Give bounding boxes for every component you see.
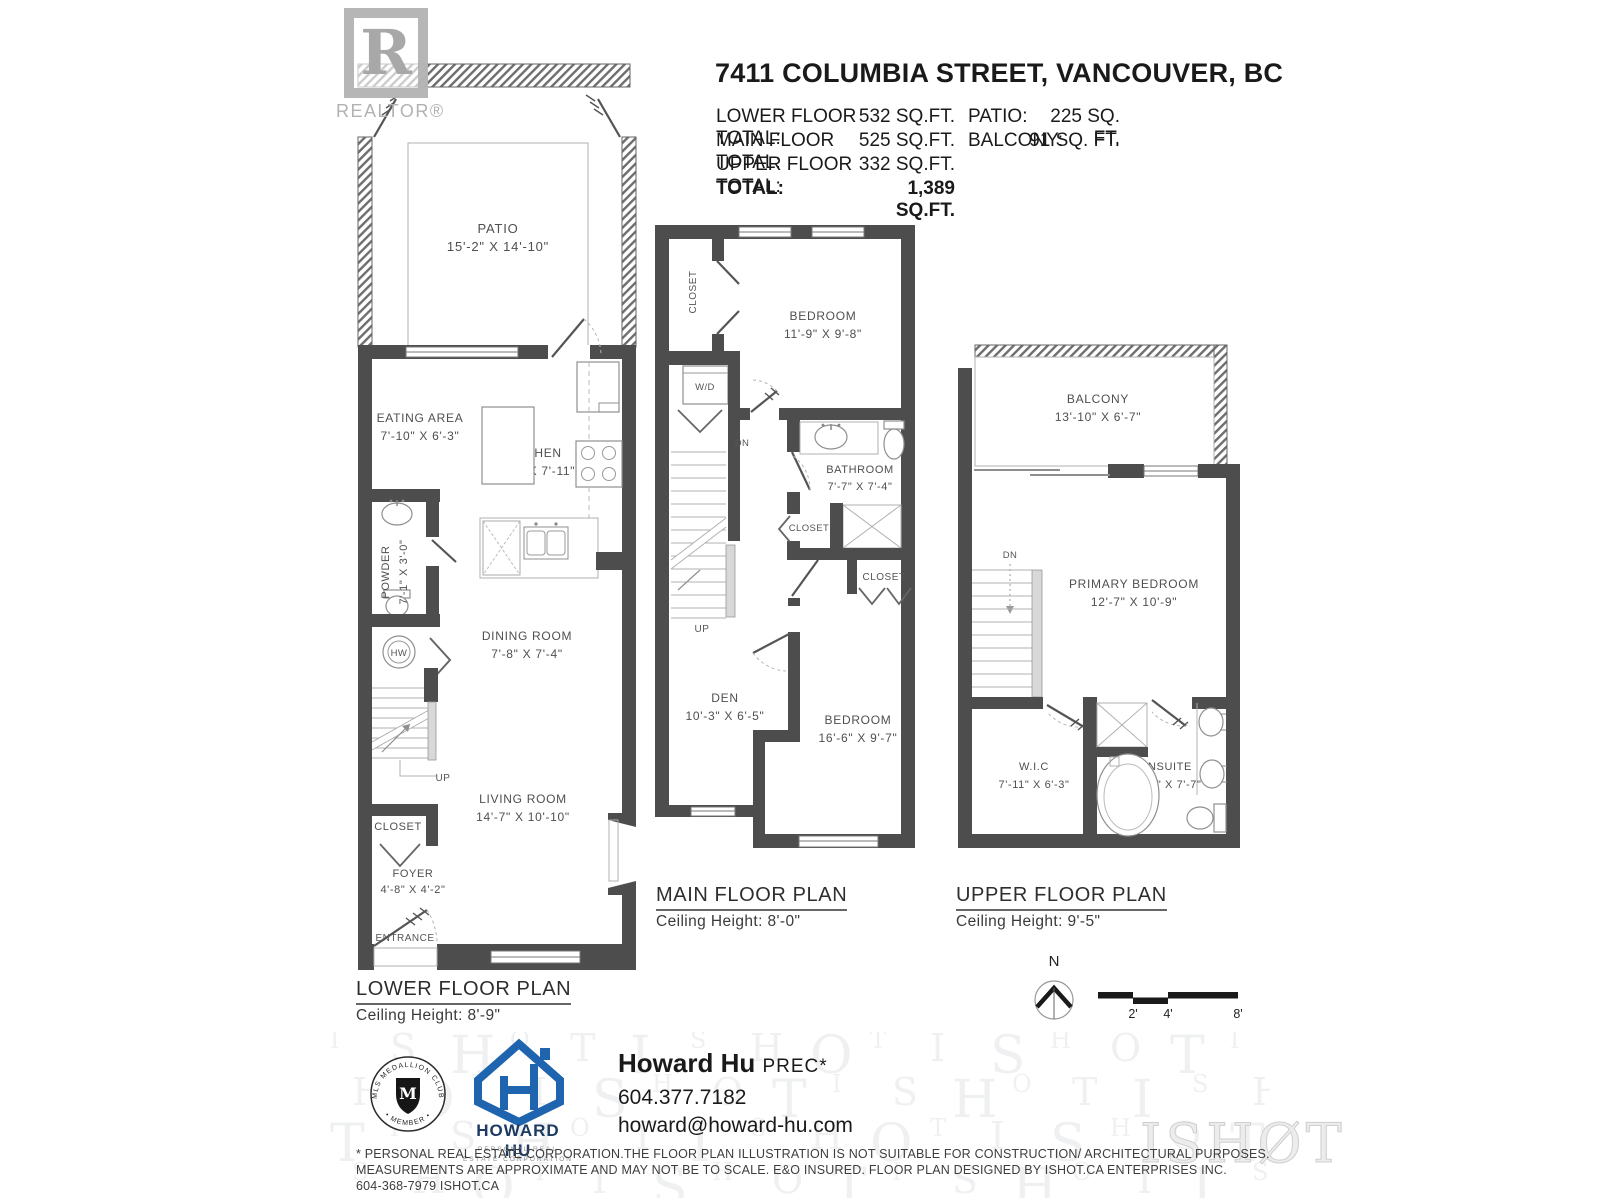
stairs-upper bbox=[972, 570, 1042, 697]
plan-ceiling: Ceiling Height: 8'-0" bbox=[656, 913, 847, 931]
upper-floor-plan: BALCONY 13'-10" X 6'-7" DN PRIMARY BEDRO… bbox=[945, 330, 1250, 855]
hw-label: HW bbox=[391, 648, 408, 659]
room-dims: 16'-6" X 9'-7" bbox=[819, 731, 898, 745]
plan-ceiling: Ceiling Height: 8'-9" bbox=[356, 1007, 571, 1025]
dn-label: DN bbox=[735, 438, 750, 449]
scale-bar: 2' 4' 8' bbox=[1098, 992, 1243, 1021]
lower-plan-caption: LOWER FLOOR PLAN Ceiling Height: 8'-9" bbox=[356, 978, 571, 1025]
scale-tick: 2' bbox=[1128, 1007, 1137, 1021]
room-label: EATING AREA bbox=[377, 411, 464, 425]
ensuite-sink bbox=[1199, 708, 1223, 736]
agent-phone[interactable]: 604.377.7182 bbox=[618, 1086, 746, 1110]
room-label: POWDER bbox=[380, 545, 392, 598]
room-dims: 7'-1" X 3'-0" bbox=[398, 539, 410, 604]
ensuite-sink bbox=[1200, 760, 1224, 788]
realtor-logo-icon: R bbox=[344, 8, 428, 98]
room-label: BALCONY bbox=[1067, 392, 1129, 406]
realtor-letter: R bbox=[360, 16, 412, 89]
main-plan-caption: MAIN FLOOR PLAN Ceiling Height: 8'-0" bbox=[656, 884, 847, 931]
room-dims: 7'-8" X 7'-4" bbox=[491, 647, 563, 661]
disclaimer-line: * PERSONAL REAL ESTATE CORPORATION.THE F… bbox=[356, 1147, 1270, 1161]
plan-title: MAIN FLOOR PLAN bbox=[656, 884, 847, 911]
floor-plan-page: ISHOTISHOTISHOTIHOTISHOTISHOTISHTISHOTIS… bbox=[0, 0, 1600, 1200]
room-dims: 7'-11" X 6'-3" bbox=[999, 779, 1070, 791]
plan-title: UPPER FLOOR PLAN bbox=[956, 884, 1167, 911]
toilet bbox=[884, 421, 904, 429]
fridge bbox=[577, 362, 619, 412]
room-dims: 7'-7" X 7'-4" bbox=[827, 481, 892, 493]
room-label: DEN bbox=[711, 691, 738, 705]
kitchen-island bbox=[482, 407, 534, 484]
room-label: PATIO bbox=[477, 221, 518, 236]
north-label: N bbox=[1049, 953, 1060, 970]
realtor-wordmark: REALTOR® bbox=[336, 101, 445, 122]
dn-label: DN bbox=[1003, 550, 1018, 561]
room-label: BATHROOM bbox=[826, 464, 894, 476]
room-label: CLOSET bbox=[789, 523, 829, 534]
ensuite-toilet bbox=[1214, 804, 1226, 832]
room-label: FOYER bbox=[393, 868, 434, 880]
agent-designation: PREC* bbox=[762, 1056, 827, 1077]
room-dims: 11'-9" X 9'-8" bbox=[784, 327, 862, 341]
scale-tick: 4' bbox=[1163, 1007, 1172, 1021]
room-dims: 15'-2" X 14'-10" bbox=[447, 239, 549, 254]
room-dims: 14'-7" X 10'-10" bbox=[476, 810, 570, 824]
lower-floor-plan: PATIO 15'-2" X 14'-10" ENTRANCE EATING A… bbox=[330, 40, 660, 975]
row-value: 525 SQ.FT. bbox=[855, 130, 955, 152]
room-dims: 12'-7" X 10'-9" bbox=[1091, 595, 1177, 609]
medallion-m: M bbox=[399, 1084, 417, 1103]
howard-hu-logo-icon bbox=[462, 1036, 577, 1126]
plan-ceiling: Ceiling Height: 9'-5" bbox=[956, 913, 1167, 931]
room-label: CLOSET bbox=[374, 821, 422, 833]
upper-plan-caption: UPPER FLOOR PLAN Ceiling Height: 9'-5" bbox=[956, 884, 1167, 931]
room-label: LIVING ROOM bbox=[479, 792, 567, 806]
room-label: PRIMARY BEDROOM bbox=[1069, 577, 1199, 591]
room-dims: 7'-10" X 6'-3" bbox=[381, 429, 460, 443]
room-label: BEDROOM bbox=[825, 713, 892, 727]
room-label: W.I.C bbox=[1019, 761, 1049, 773]
row-value: 332 SQ.FT. bbox=[855, 154, 955, 176]
disclaimer-line: 604-368-7979 ISHOT.CA bbox=[356, 1179, 499, 1193]
room-label: BEDROOM bbox=[790, 309, 857, 323]
entrance-label: ENTRANCE bbox=[375, 933, 434, 944]
row-value: 532 SQ.FT. bbox=[855, 106, 955, 128]
bathtub bbox=[1097, 754, 1159, 836]
room-dims: 10'-3" X 6'-5" bbox=[686, 709, 765, 723]
side-value: 91 SQ. FT. bbox=[1028, 130, 1120, 152]
mls-medallion-logo: MLS MEDALLION CLUB • MEMBER • M bbox=[360, 1052, 456, 1142]
room-label: CLOSET bbox=[688, 270, 699, 313]
plan-title: LOWER FLOOR PLAN bbox=[356, 978, 571, 1005]
agent-email[interactable]: howard@howard-hu.com bbox=[618, 1114, 853, 1138]
up-label: UP bbox=[436, 773, 451, 784]
page-title: 7411 COLUMBIA STREET, VANCOUVER, BC bbox=[715, 58, 1283, 89]
compass-and-scale: N 2' 4' 8' bbox=[1000, 940, 1260, 1030]
room-label: DINING ROOM bbox=[482, 629, 572, 643]
agent-name: Howard Hu PREC* bbox=[618, 1048, 828, 1079]
wd-label: W/D bbox=[695, 382, 715, 393]
stove bbox=[576, 441, 622, 487]
kitchen-sink bbox=[524, 527, 568, 559]
stairs-main bbox=[671, 452, 735, 618]
main-floor-plan: CLOSET BEDROOM 11'-9" X 9'-8" W/D DN BAT… bbox=[645, 215, 945, 860]
room-dims: 13'-10" X 6'-7" bbox=[1055, 410, 1141, 424]
stairs-lower bbox=[372, 668, 438, 776]
powder-sink bbox=[382, 503, 412, 525]
room-dims: 4'-8" X 4'-2" bbox=[380, 884, 445, 896]
up-label: UP bbox=[695, 624, 710, 635]
scale-tick: 8' bbox=[1233, 1007, 1242, 1021]
room-label: CLOSET bbox=[862, 572, 905, 583]
disclaimer-line: MEASUREMENTS ARE APPROXIMATE AND MAY NOT… bbox=[356, 1163, 1227, 1177]
